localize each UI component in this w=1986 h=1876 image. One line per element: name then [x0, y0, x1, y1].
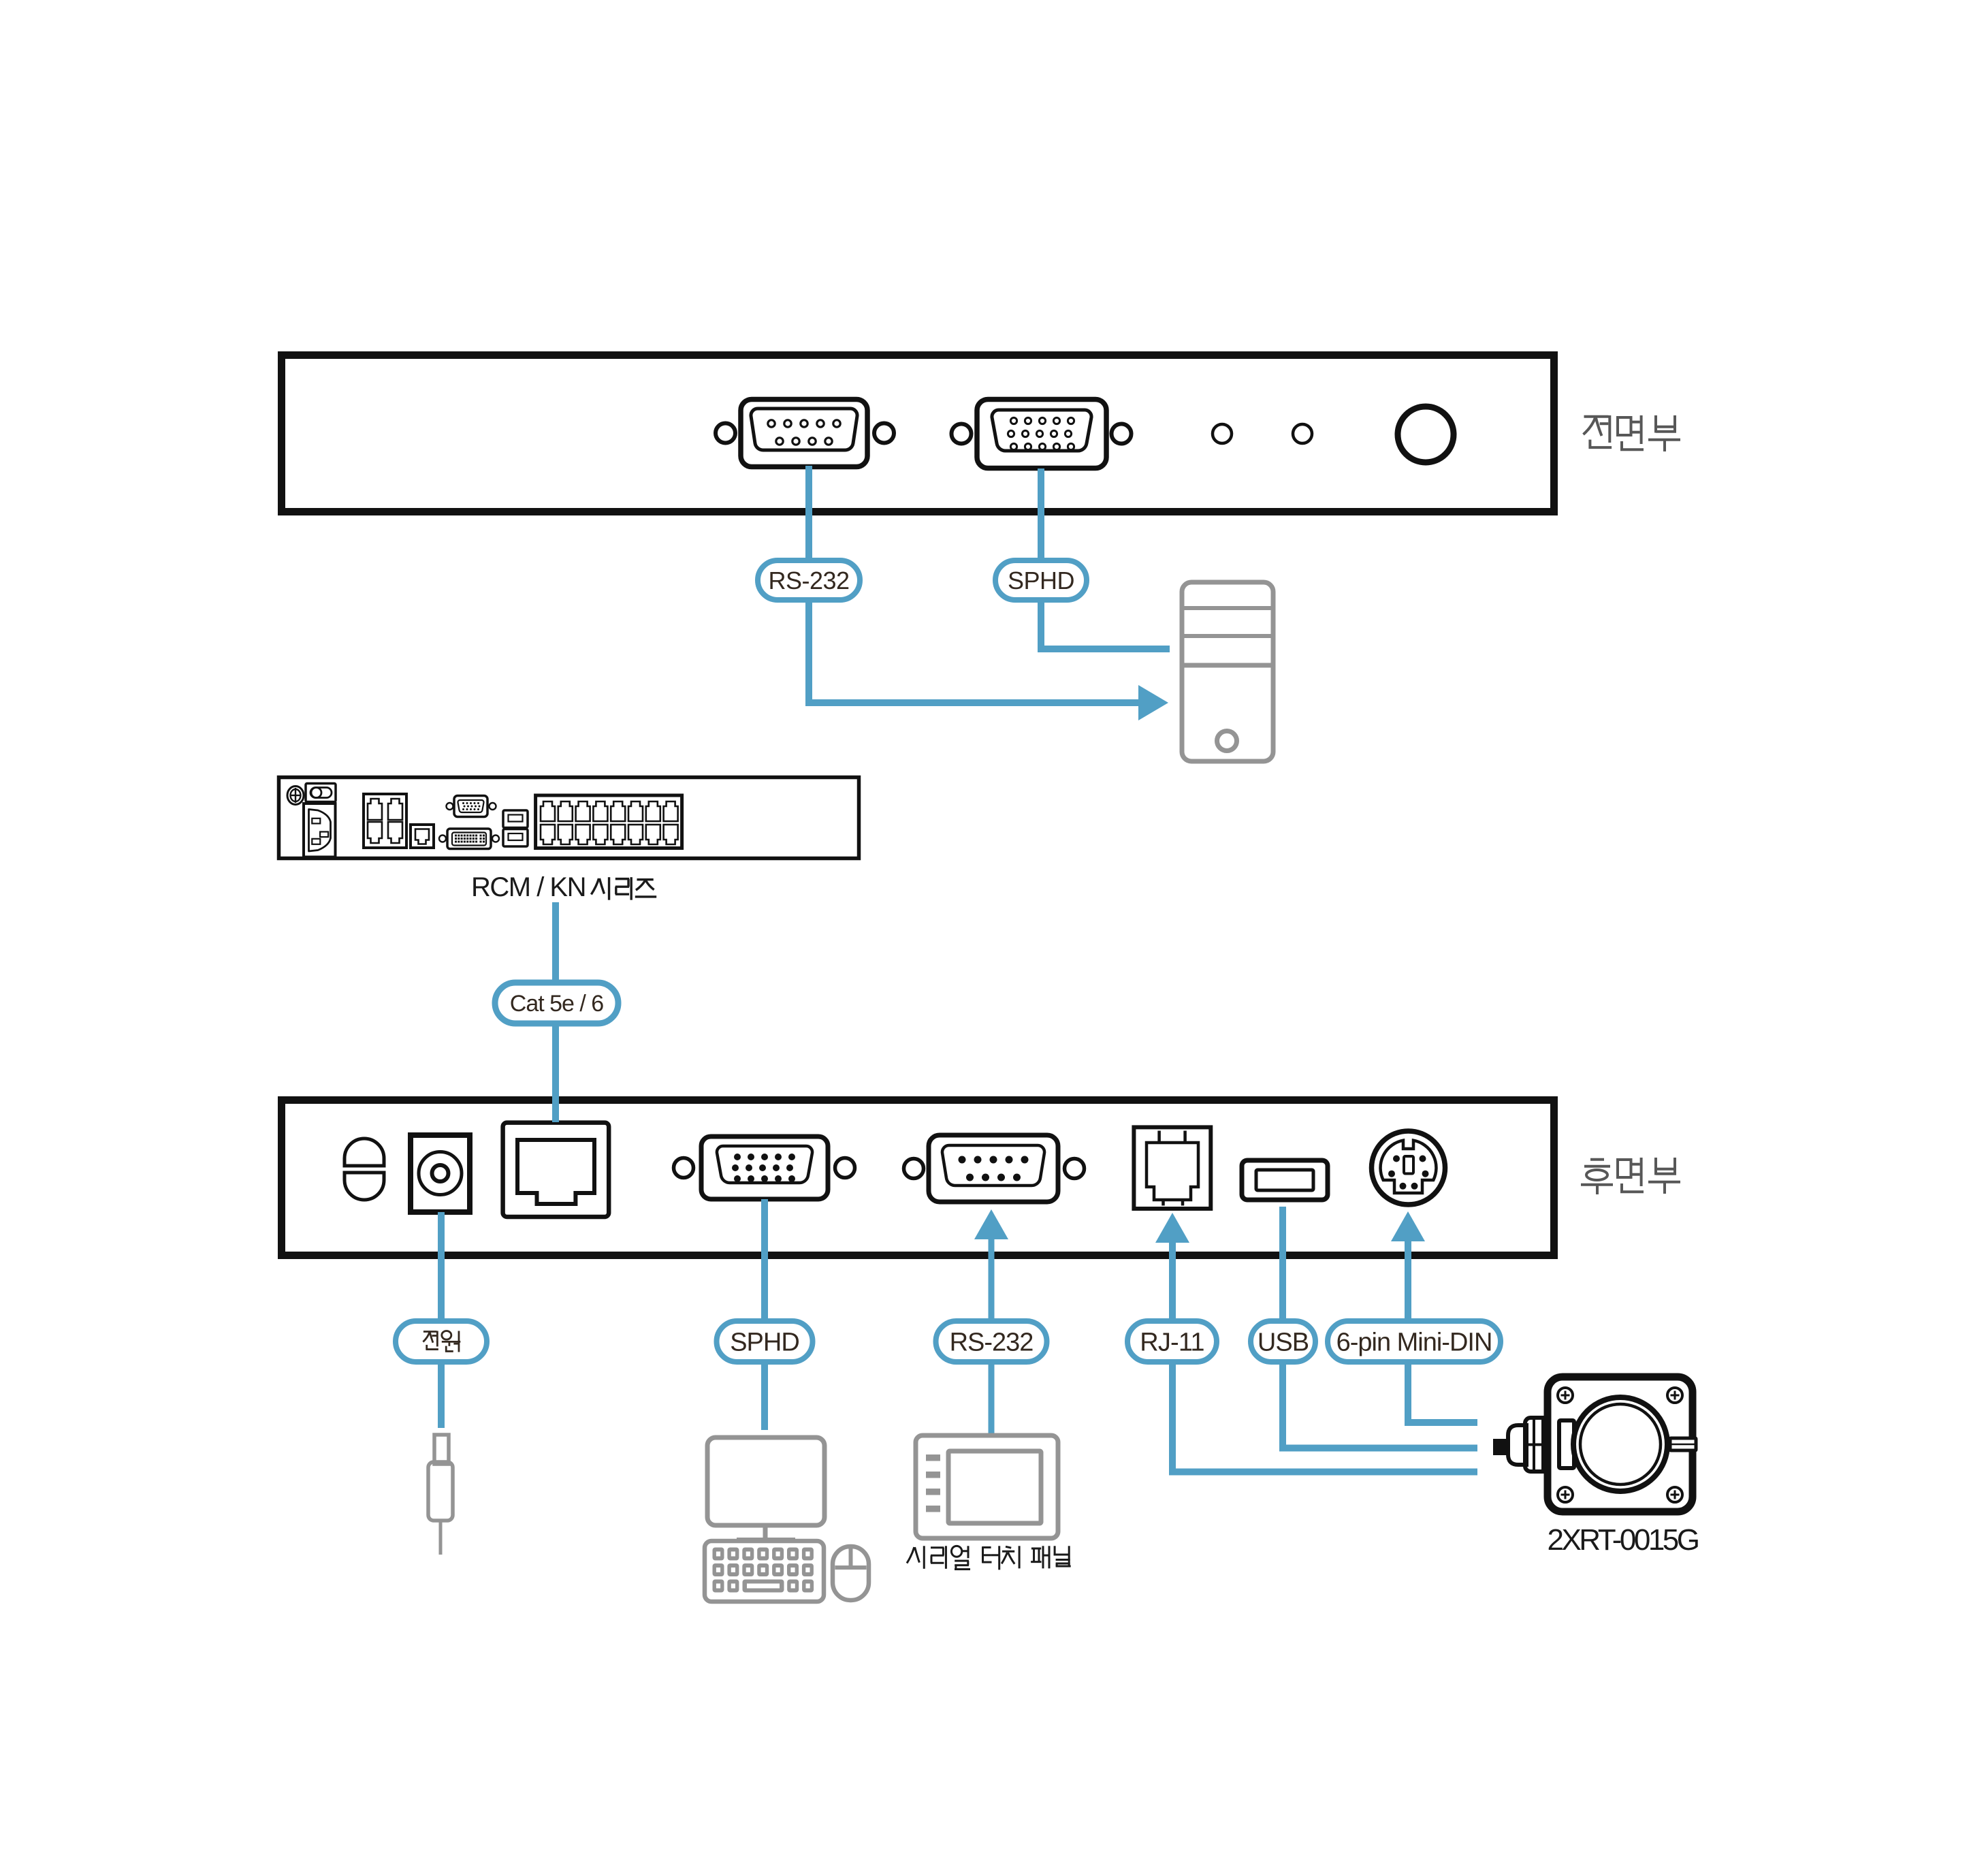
svg-text:RS-232: RS-232: [950, 1329, 1034, 1357]
svg-text:USB: USB: [1258, 1329, 1309, 1357]
svg-text:SPHD: SPHD: [730, 1329, 799, 1357]
svg-text:RJ-11: RJ-11: [1140, 1329, 1204, 1357]
svg-text:SPHD: SPHD: [1008, 567, 1074, 594]
svg-text:RCM / KN: RCM / KN: [471, 872, 586, 902]
svg-text:Cat 5e / 6: Cat 5e / 6: [510, 991, 604, 1017]
svg-text:RS-232: RS-232: [768, 567, 849, 594]
svg-text:2XRT-0015G: 2XRT-0015G: [1547, 1523, 1697, 1557]
svg-text:6-pin Mini-DIN: 6-pin Mini-DIN: [1336, 1329, 1492, 1357]
